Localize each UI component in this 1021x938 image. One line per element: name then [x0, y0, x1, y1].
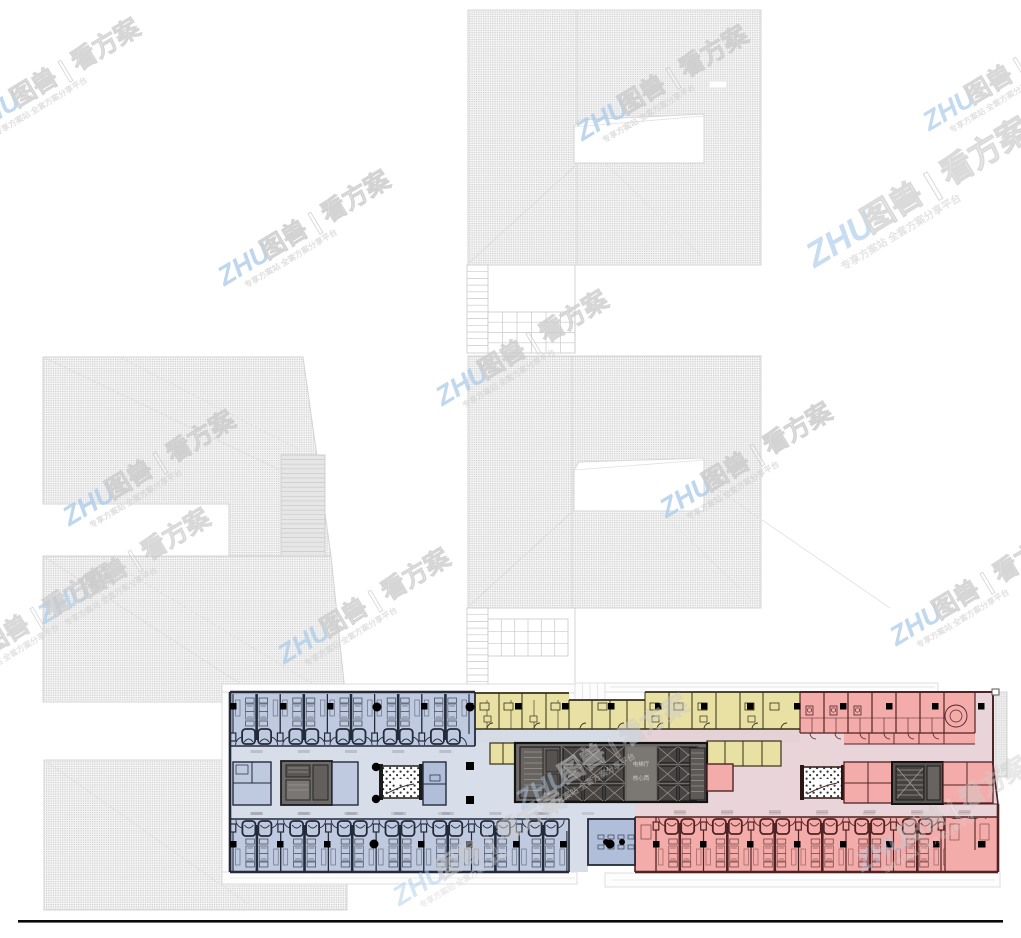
- svg-text:电梯厅: 电梯厅: [633, 760, 650, 768]
- svg-text:核心筒: 核心筒: [633, 774, 650, 782]
